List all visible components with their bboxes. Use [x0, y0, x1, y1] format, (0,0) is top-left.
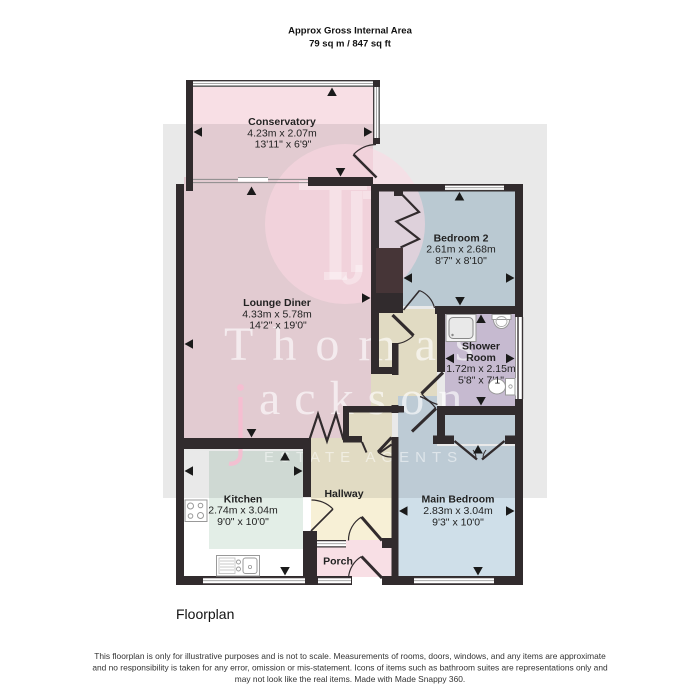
svg-text:4.33m x 5.78m: 4.33m x 5.78m: [242, 308, 312, 320]
svg-text:9'0" x 10'0": 9'0" x 10'0": [217, 516, 269, 528]
svg-text:9'3" x 10'0": 9'3" x 10'0": [432, 516, 484, 528]
svg-text:Porch: Porch: [323, 556, 353, 568]
svg-text:Bedroom 2: Bedroom 2: [434, 232, 489, 244]
svg-text:Kitchen: Kitchen: [224, 493, 263, 505]
svg-text:1.72m x 2.15m: 1.72m x 2.15m: [446, 363, 516, 375]
svg-text:79 sq m / 847 sq ft: 79 sq m / 847 sq ft: [309, 39, 392, 50]
svg-text:Floorplan: Floorplan: [176, 606, 234, 622]
svg-text:13'11" x 6'9": 13'11" x 6'9": [255, 139, 312, 151]
svg-text:Shower: Shower: [462, 341, 500, 353]
svg-text:4.23m x 2.07m: 4.23m x 2.07m: [247, 127, 317, 139]
svg-text:Conservatory: Conservatory: [248, 116, 316, 128]
svg-text:Hallway: Hallway: [324, 488, 363, 500]
svg-text:Main Bedroom: Main Bedroom: [422, 494, 495, 506]
svg-text:may not look like the real ite: may not look like the real items. Made w…: [235, 674, 465, 684]
svg-text:2.83m x 3.04m: 2.83m x 3.04m: [423, 505, 493, 517]
svg-text:and no responsibility is taken: and no responsibility is taken for any e…: [92, 663, 608, 673]
svg-text:5'8" x 7'1": 5'8" x 7'1": [458, 374, 504, 386]
svg-text:Approx Gross Internal Area: Approx Gross Internal Area: [288, 26, 412, 37]
svg-text:8'7" x 8'10": 8'7" x 8'10": [435, 255, 487, 267]
svg-text:Lounge Diner: Lounge Diner: [243, 297, 311, 309]
svg-text:ESTATE AGENTS: ESTATE AGENTS: [264, 449, 463, 466]
svg-text:2.74m x 3.04m: 2.74m x 3.04m: [208, 505, 278, 517]
svg-text:Room: Room: [466, 352, 496, 364]
svg-text:This floorplan is only for ill: This floorplan is only for illustrative …: [94, 651, 606, 661]
svg-text:14'2" x 19'0": 14'2" x 19'0": [249, 320, 307, 332]
svg-text:2.61m x 2.68m: 2.61m x 2.68m: [426, 244, 496, 256]
